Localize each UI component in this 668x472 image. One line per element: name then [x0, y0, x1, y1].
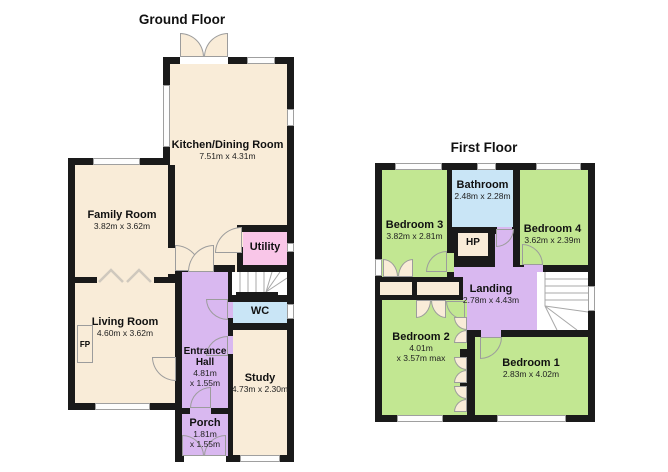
window-marker [497, 415, 566, 422]
floorplan-canvas: FP Ground Floor Kitchen/Dining Room 7.51… [0, 0, 668, 472]
window-marker [95, 403, 150, 410]
room-label-study: Study 4.73m x 2.30m [222, 372, 298, 395]
room-dims: 2.78m x 4.43m [445, 296, 537, 306]
room-name: Entrance Hall [180, 346, 230, 368]
fireplace-label: FP [80, 340, 90, 349]
window-marker [163, 85, 170, 147]
room-name: Bathroom [450, 179, 515, 191]
door-opening [180, 57, 228, 64]
window-marker [395, 163, 442, 170]
room-name: WC [233, 305, 287, 317]
window-marker [375, 259, 382, 276]
first-floor-title: First Floor [428, 140, 540, 155]
room-label-landing: Landing 2.78m x 4.43m [445, 283, 537, 306]
room-label-wc: WC [233, 305, 287, 317]
window-marker [536, 163, 581, 170]
room-dims: 3.62m x 2.39m [517, 236, 588, 246]
room-name: HP [458, 237, 488, 248]
room-name: Family Room [86, 209, 158, 221]
ground-floor-title: Ground Floor [112, 12, 252, 27]
door-opening [168, 248, 175, 274]
stairs-treads-icon [537, 272, 588, 330]
room-dims: 3.82m x 3.62m [86, 222, 158, 232]
room-label-bedroom2: Bedroom 2 4.01m x 3.57m max [381, 331, 461, 364]
window-marker [240, 455, 280, 462]
room-name: Bedroom 1 [477, 357, 585, 369]
door-opening [184, 456, 226, 462]
room-name: Bedroom 4 [517, 223, 588, 235]
window-marker [588, 286, 595, 311]
room-dims: 4.60m x 3.62m [89, 329, 161, 339]
room-label-living: Living Room 4.60m x 3.62m [89, 316, 161, 339]
door-opening [447, 253, 454, 272]
room-dims: x 3.57m max [381, 354, 461, 364]
room-label-kitchen: Kitchen/Dining Room 7.51m x 4.31m [165, 139, 290, 162]
room-name: Living Room [89, 316, 161, 328]
window-marker [397, 415, 443, 422]
window-marker [477, 163, 496, 170]
door-opening [481, 330, 501, 337]
room-label-porch: Porch 1.81m x 1.55m [180, 417, 230, 450]
wall-segment [460, 349, 475, 357]
closet [380, 282, 412, 295]
room-label-bedroom4: Bedroom 4 3.62m x 2.39m [517, 223, 588, 246]
room-name: Bedroom 3 [381, 219, 448, 231]
open-divider-icon [96, 265, 154, 283]
room-name: Porch [180, 417, 230, 429]
room-name: Utility [243, 241, 287, 253]
wall-segment [213, 265, 235, 272]
room-name: Landing [445, 283, 537, 295]
room-label-family: Family Room 3.82m x 3.62m [86, 209, 158, 232]
room-label-bathroom: Bathroom 2.48m x 2.28m [450, 179, 515, 202]
window-marker [287, 243, 294, 252]
room-label-bedroom3: Bedroom 3 3.82m x 2.81m [381, 219, 448, 242]
door-swing-icon [204, 33, 228, 57]
room-label-bedroom1: Bedroom 1 2.83m x 4.02m [477, 357, 585, 380]
room-dims: 2.83m x 4.02m [477, 370, 585, 380]
room-dims: 4.73m x 2.30m [222, 385, 298, 395]
room-label-utility: Utility [243, 241, 287, 253]
room-name: Study [222, 372, 298, 384]
window-marker [287, 304, 294, 319]
window-marker [287, 109, 294, 126]
door-opening [190, 408, 211, 414]
room-name: Kitchen/Dining Room [165, 139, 290, 151]
room-dims: 7.51m x 4.31m [165, 152, 290, 162]
window-marker [247, 57, 275, 64]
door-swing-icon [180, 33, 204, 57]
room-name: Bedroom 2 [381, 331, 461, 343]
room-label-hp: HP [458, 237, 488, 248]
window-marker [93, 158, 140, 165]
room-dims: 2.48m x 2.28m [450, 192, 515, 202]
room-dims: 3.82m x 2.81m [381, 232, 448, 242]
room-dims: x 1.55m [180, 440, 230, 450]
door-opening [524, 265, 543, 272]
